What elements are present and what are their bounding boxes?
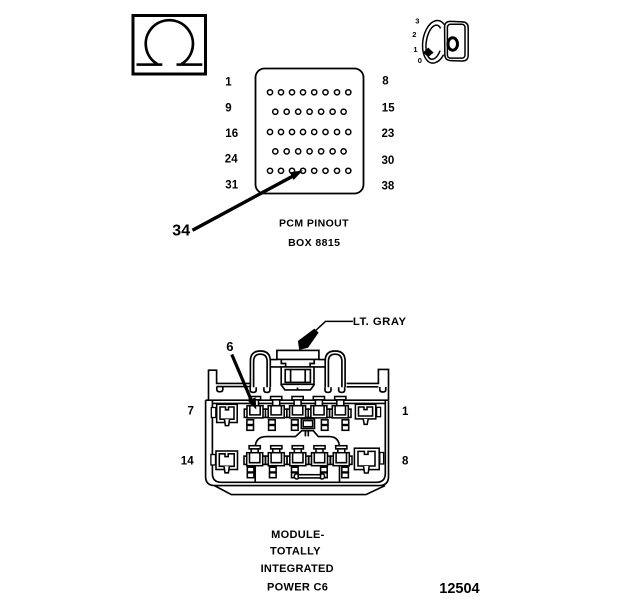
svg-text:8: 8 <box>382 76 389 88</box>
svg-text:0: 0 <box>418 56 422 65</box>
svg-text:MODULE-: MODULE- <box>271 529 324 541</box>
svg-text:31: 31 <box>225 180 238 192</box>
svg-text:24: 24 <box>225 154 238 166</box>
svg-text:7: 7 <box>188 405 194 417</box>
svg-text:2: 2 <box>412 30 416 39</box>
svg-text:TOTALLY: TOTALLY <box>270 546 321 558</box>
svg-text:3: 3 <box>415 17 419 26</box>
svg-text:30: 30 <box>382 155 395 167</box>
svg-text:1: 1 <box>413 45 417 54</box>
svg-text:INTEGRATED: INTEGRATED <box>261 563 334 575</box>
svg-text:14: 14 <box>181 455 194 467</box>
svg-text:1: 1 <box>225 76 232 88</box>
svg-text:BOX 8815: BOX 8815 <box>288 237 340 249</box>
svg-text:9: 9 <box>225 103 231 115</box>
svg-text:12504: 12504 <box>439 581 479 597</box>
svg-text:POWER C6: POWER C6 <box>267 581 328 593</box>
svg-text:PCM PINOUT: PCM PINOUT <box>279 218 349 230</box>
svg-text:16: 16 <box>225 128 238 140</box>
svg-text:23: 23 <box>382 128 395 140</box>
svg-text:8: 8 <box>402 455 409 467</box>
svg-text:LT. GRAY: LT. GRAY <box>353 316 407 328</box>
svg-text:1: 1 <box>402 406 409 418</box>
svg-text:15: 15 <box>382 102 395 114</box>
svg-text:6: 6 <box>226 339 233 354</box>
svg-text:38: 38 <box>382 181 395 193</box>
svg-text:34: 34 <box>172 222 190 239</box>
